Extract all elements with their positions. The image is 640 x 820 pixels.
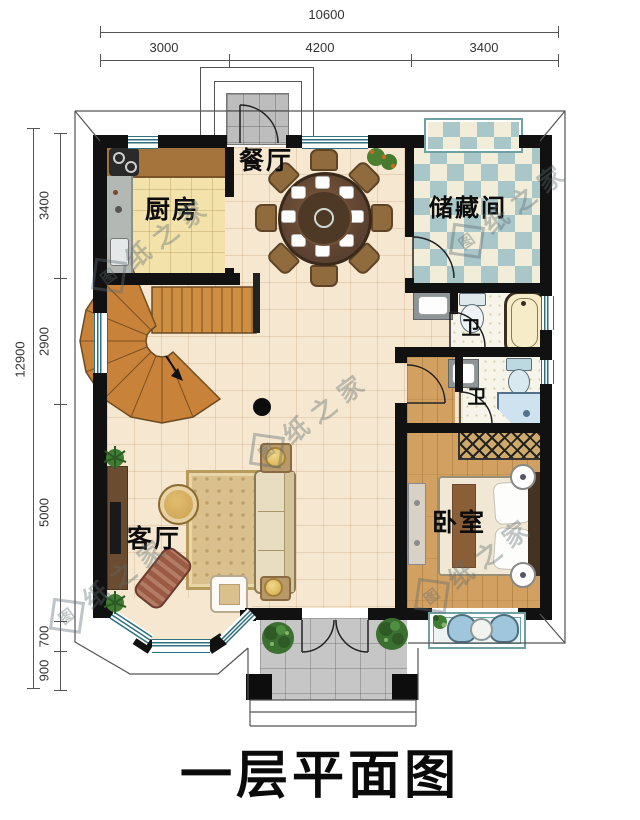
porch-column [246,674,272,700]
dim-left-seg-5: 900 [37,648,52,694]
nightstand-lamp-icon [510,464,536,490]
nightstand-lamp-icon [510,562,536,588]
wall-segment [398,347,543,357]
stove-icon [109,148,139,176]
porch-column [392,674,418,700]
wall-segment [405,283,552,293]
wall-segment [253,273,260,333]
window [128,136,158,149]
dining-chair [310,265,338,287]
window [152,639,210,653]
wall-segment [93,373,107,618]
wall-segment [368,135,424,148]
wall-segment [158,135,227,148]
dim-left-seg-2: 2900 [37,319,52,365]
wall-segment [407,423,552,433]
page-title: 一层平面图 [0,748,640,805]
room-label-bath-lower: 卫 [463,388,493,409]
lamp-icon [265,447,286,468]
wall-segment [395,347,407,363]
dining-chair [310,149,338,171]
bay-table [470,618,493,641]
dim-left-seg-1: 3400 [37,183,52,229]
room-label-kitchen: 厨房 [132,197,212,225]
wall-segment [395,403,407,620]
dim-top-seg-3: 3400 [434,40,534,55]
window [541,296,554,330]
room-label-bath-upper: 卫 [458,319,486,340]
round-tray-table [158,484,199,525]
structural-column [253,398,271,416]
room-label-storage: 储藏间 [408,196,528,222]
lamp-icon [264,578,283,597]
floor-plan: 餐厅 厨房 储藏间 卫 卫 客厅 卧室 10600 3000 4200 3400… [0,0,640,820]
room-label-bedroom: 卧室 [414,510,504,538]
wall-segment [455,357,463,392]
dim-top-total: 10600 [95,7,558,22]
window [94,313,108,373]
dim-top-seg-1: 3000 [114,40,214,55]
bay-post [95,600,113,618]
bay-chair [489,614,519,643]
dining-chair [371,204,393,232]
wall-segment [540,135,552,296]
living-rug [186,470,264,590]
window [541,360,554,384]
bay-post [240,610,256,621]
wall-segment [93,135,107,313]
wall-segment [540,384,552,608]
room-label-living: 客厅 [114,526,194,554]
kitchen-sink-icon [110,238,129,266]
window [302,136,368,149]
coffee-table [210,575,248,613]
dim-left-total: 12900 [13,334,28,386]
washbasin-icon [418,296,448,315]
dim-left-seg-3: 5000 [37,490,52,536]
dining-chair [255,204,277,232]
room-label-dining: 餐厅 [226,148,306,176]
wall-segment [450,292,458,314]
dim-top-seg-2: 4200 [270,40,370,55]
wall-segment [405,147,414,237]
wall-segment [93,273,240,285]
